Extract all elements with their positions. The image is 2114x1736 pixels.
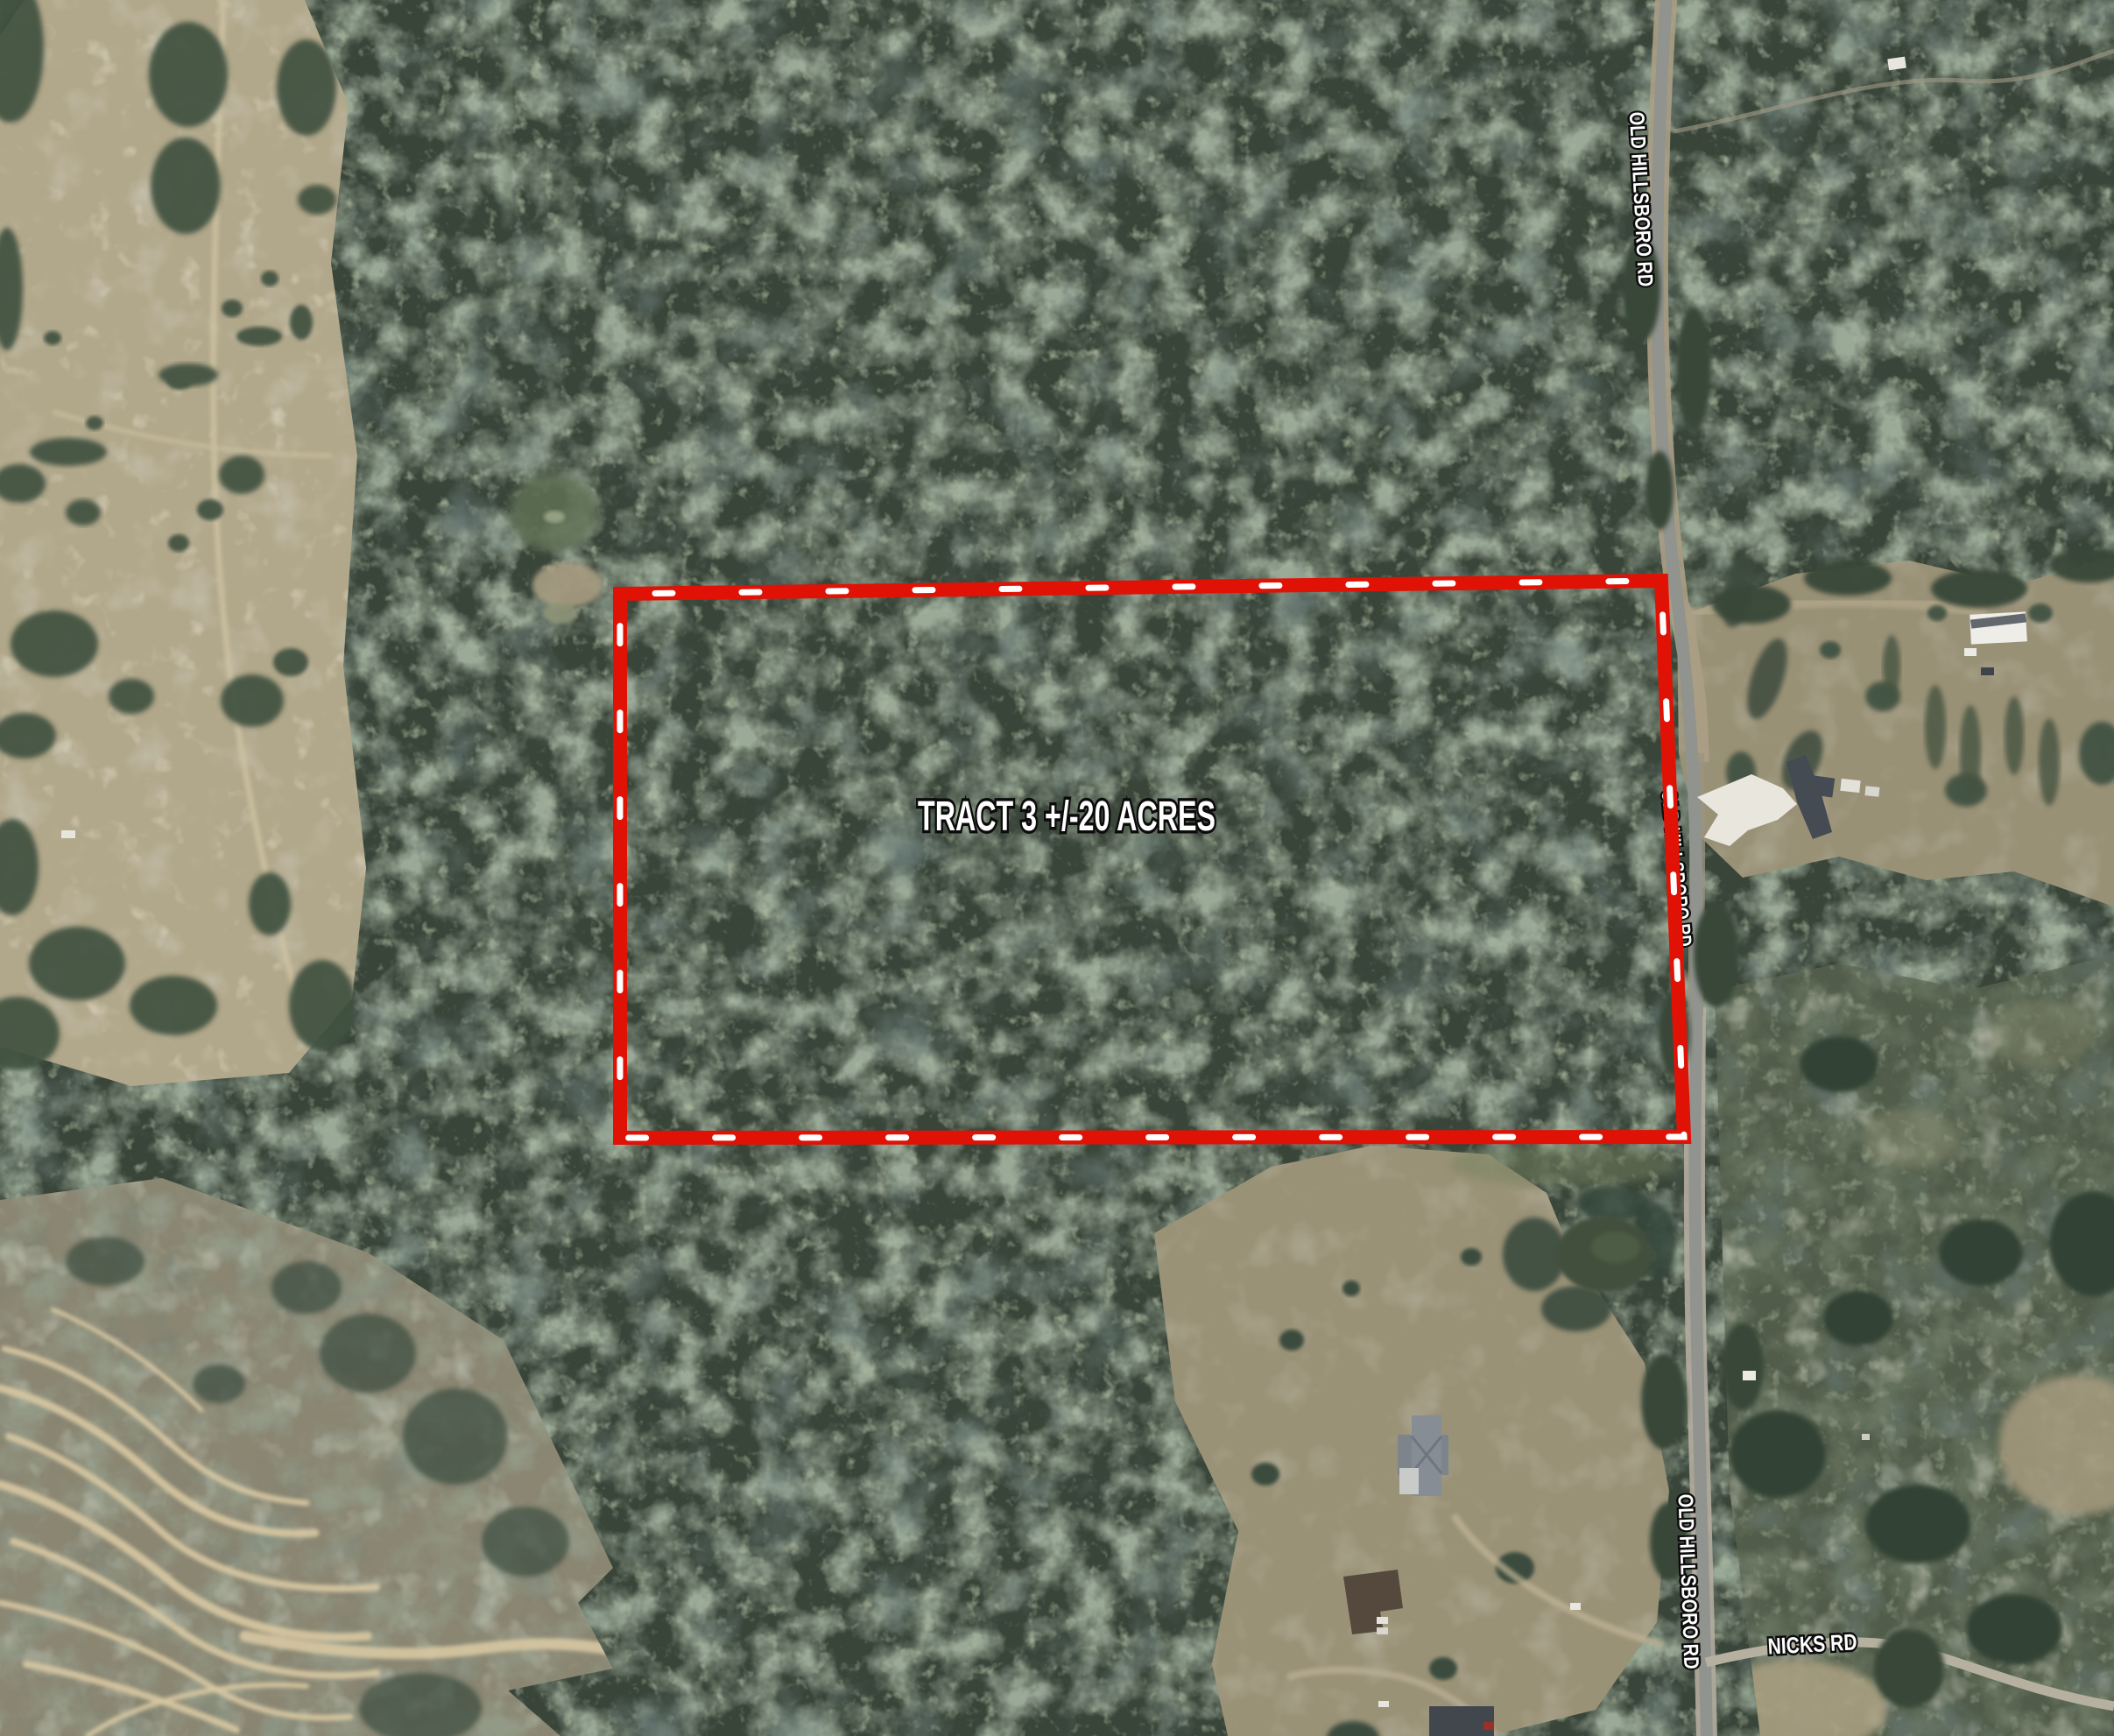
svg-text:TRACT 3 +/-20 ACRES: TRACT 3 +/-20 ACRES [918,794,1216,840]
svg-text:NICKS RD: NICKS RD [1767,1628,1857,1659]
